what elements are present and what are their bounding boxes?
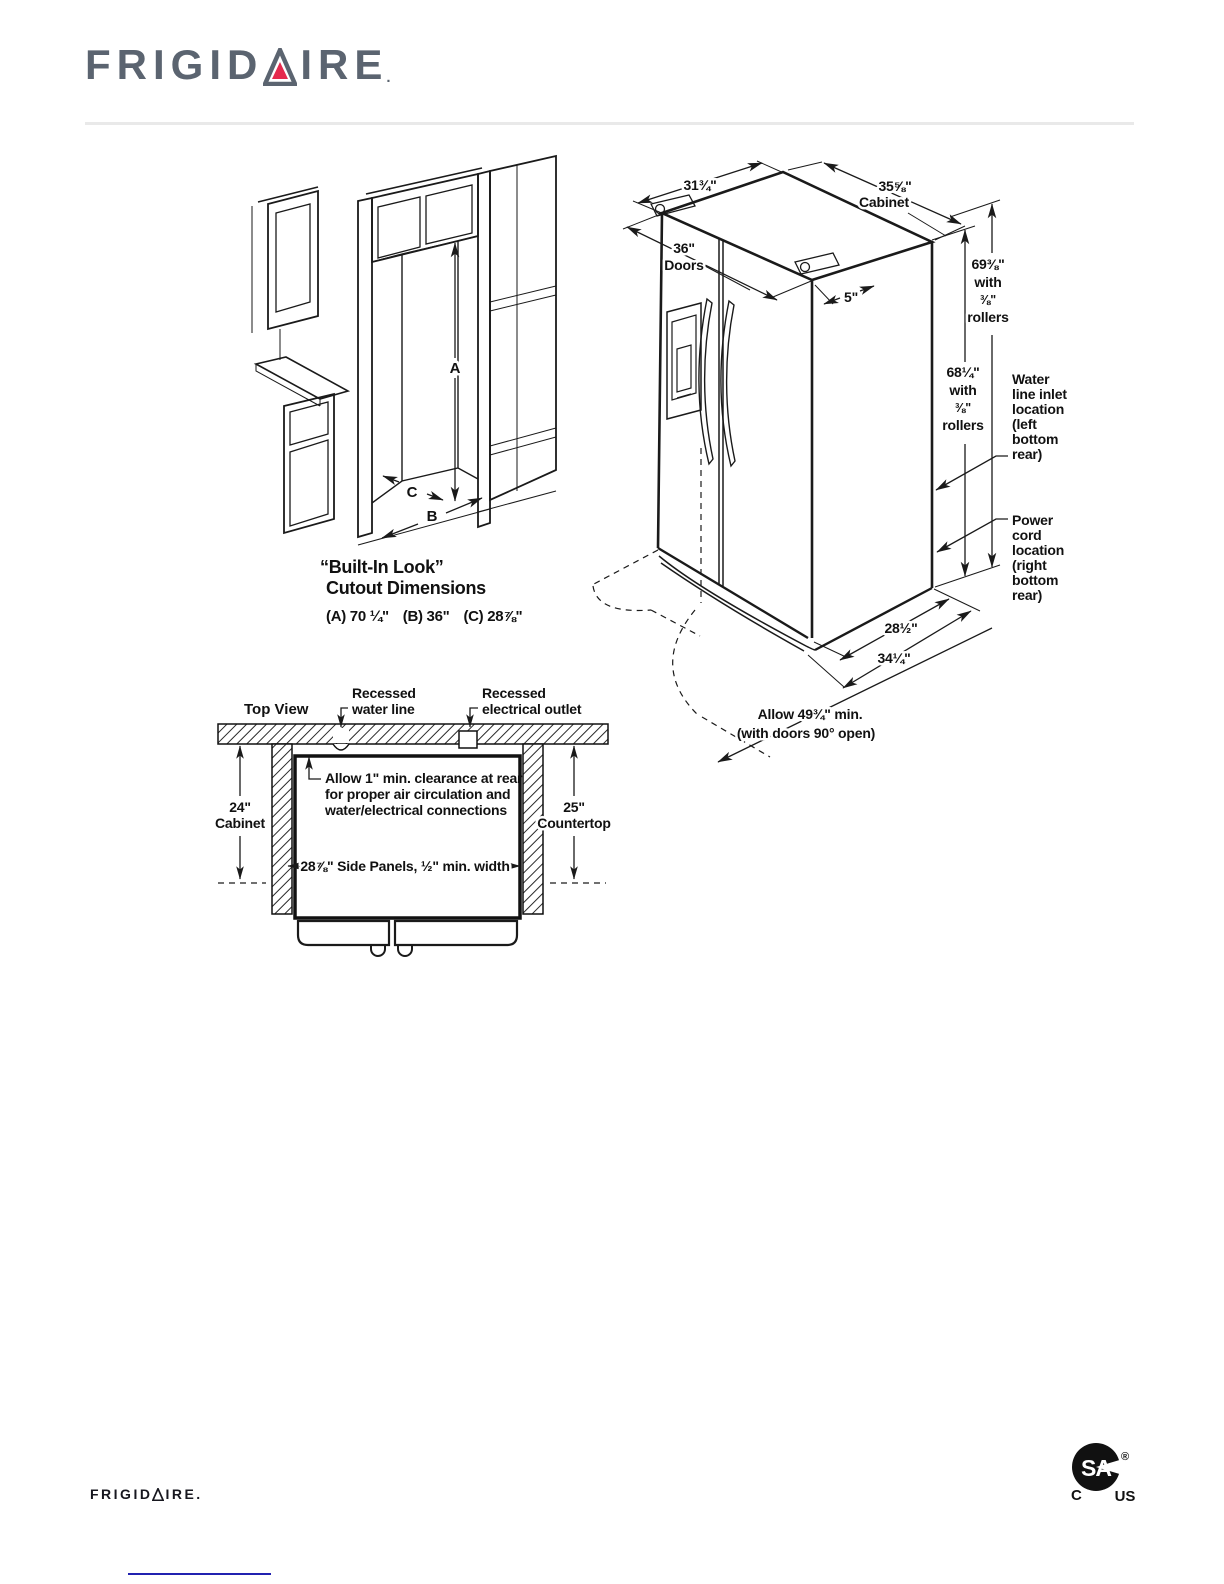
svg-text:water line: water line: [351, 701, 415, 717]
dim-doors-width-label: Doors: [664, 257, 704, 273]
recessed-outlet-box: [459, 731, 477, 748]
svg-text:Cabinet: Cabinet: [215, 815, 265, 831]
logo-text-left: FRIGID: [85, 46, 263, 85]
cutout-label-a: A: [450, 360, 461, 377]
svg-text:rollers: rollers: [942, 417, 984, 433]
cutout-label-b: B: [427, 508, 438, 525]
door-handle-left: [371, 945, 385, 956]
svg-text:water/electrical connections: water/electrical connections: [324, 802, 507, 818]
svg-text:Recessed: Recessed: [482, 685, 546, 701]
svg-text:(right: (right: [1012, 557, 1047, 573]
side-panels-label: 28⅞" Side Panels, ½" min. width: [300, 858, 509, 874]
cabinet-depth-label: 24" Cabinet: [215, 799, 265, 831]
svg-text:24": 24": [229, 799, 251, 815]
door-handle-right: [398, 945, 412, 956]
svg-text:with: with: [973, 274, 1001, 290]
builtin-dimensions: (A) 70 ¼" (B) 36" (C) 28⅞": [326, 608, 522, 625]
svg-text:Countertop: Countertop: [537, 815, 610, 831]
svg-text:rollers: rollers: [967, 309, 1009, 325]
csa-us-label: US: [1115, 1488, 1136, 1505]
builtin-dim-b: (B) 36": [403, 608, 450, 625]
svg-text:location: location: [1012, 401, 1064, 417]
csa-monogram: SA: [1081, 1455, 1111, 1481]
builtin-title-block: “Built-In Look” Cutout Dimensions: [320, 557, 560, 599]
recessed-water-line-notch: [333, 744, 349, 750]
svg-text:bottom: bottom: [1012, 572, 1058, 588]
ice-water-dispenser: [667, 303, 701, 419]
logo-text-right: IRE: [300, 46, 388, 85]
footer-link-underline: [128, 1573, 271, 1575]
dim-depth-doors: 34¼": [877, 650, 910, 666]
door-swing-note-line2: (with doors 90° open): [737, 725, 875, 741]
svg-text:for proper air circulation and: for proper air circulation and: [325, 786, 510, 802]
footer-logo-right: IRE: [165, 1487, 196, 1501]
top-view-title: Top View: [244, 701, 309, 718]
dim-doors-width: 36": [673, 240, 695, 256]
svg-text:rear): rear): [1012, 587, 1042, 603]
dim-height-cabinet: 68¼" with ⅜" rollers: [942, 364, 984, 433]
cutout-cabinetry-lines: [252, 156, 556, 545]
csa-registered-mark: ®: [1121, 1451, 1129, 1463]
cutout-label-c: C: [407, 484, 418, 501]
countertop-depth-label: 25" Countertop: [537, 799, 610, 831]
rear-clearance-note: Allow 1" min. clearance at rear for prop…: [324, 770, 523, 818]
footer-frigidaire-logo: FRIGIDIRE.: [90, 1487, 203, 1501]
top-view-diagram: Top View Recessed water line Recessed el…: [210, 676, 620, 966]
svg-text:with: with: [948, 382, 976, 398]
recessed-outlet-note: Recessed electrical outlet: [482, 685, 582, 717]
refrigerator-diagram: 31¾" 35⅝" Cabinet 36" Doors 5" 69⅜" with…: [585, 148, 1075, 788]
footer-logo-left: FRIGID: [90, 1487, 152, 1501]
dim-cabinet-width-label: Cabinet: [859, 194, 909, 210]
svg-text:(left: (left: [1012, 416, 1037, 432]
svg-text:69⅜": 69⅜": [971, 256, 1004, 272]
csa-certification-mark: SA ® C US: [1045, 1420, 1140, 1520]
frigidaire-logo: FRIGIDIRE.: [85, 46, 391, 85]
svg-text:68¼": 68¼": [946, 364, 979, 380]
svg-text:Power: Power: [1012, 512, 1054, 528]
builtin-title-line2: Cutout Dimensions: [326, 578, 560, 599]
svg-text:Water: Water: [1012, 371, 1050, 387]
header-divider: [85, 122, 1134, 125]
builtin-dim-a: (A) 70 ¼": [326, 608, 389, 625]
power-cord-note: Power cord location (right bottom rear): [1012, 512, 1064, 603]
logo-triangle-icon: [263, 48, 297, 86]
svg-text:electrical outlet: electrical outlet: [482, 701, 582, 717]
cutout-diagram: A C B: [240, 150, 570, 560]
csa-c-label: C: [1071, 1487, 1082, 1504]
dim-top-width: 31¾": [683, 177, 716, 193]
svg-text:cord: cord: [1012, 527, 1042, 543]
svg-text:⅜": ⅜": [980, 293, 996, 307]
left-side-panel: [272, 744, 292, 914]
builtin-title-line1: “Built-In Look”: [320, 557, 560, 578]
logo-trademark: .: [386, 71, 390, 85]
svg-text:line inlet: line inlet: [1012, 386, 1067, 402]
builtin-dim-c: (C) 28⅞": [463, 608, 522, 625]
dim-cabinet-width: 35⅝": [878, 178, 911, 194]
footer-logo-triangle-icon: [152, 1488, 164, 1501]
cutout-dimension-arrows: [382, 243, 482, 538]
dim-depth-cabinet: 28½": [884, 620, 917, 636]
top-view-doors: [298, 921, 517, 956]
svg-text:location: location: [1012, 542, 1064, 558]
svg-text:Recessed: Recessed: [352, 685, 416, 701]
svg-text:25": 25": [563, 799, 585, 815]
svg-text:rear): rear): [1012, 446, 1042, 462]
dim-height-with-hinges: 69⅜" with ⅜" rollers: [967, 256, 1009, 325]
spec-sheet-page: FRIGIDIRE.: [0, 0, 1224, 1584]
water-line-inlet-note: Water line inlet location (left bottom r…: [1012, 371, 1067, 462]
dim-hinge-offset: 5": [844, 289, 858, 305]
svg-text:bottom: bottom: [1012, 431, 1058, 447]
recessed-water-line-note: Recessed water line: [351, 685, 416, 717]
svg-text:Allow 1" min. clearance at rea: Allow 1" min. clearance at rear: [325, 770, 523, 786]
svg-text:⅜": ⅜": [955, 401, 971, 415]
rear-wall: [218, 724, 608, 744]
footer-logo-mark: .: [196, 1487, 202, 1501]
door-swing-note-line1: Allow 49¾" min.: [758, 706, 863, 722]
